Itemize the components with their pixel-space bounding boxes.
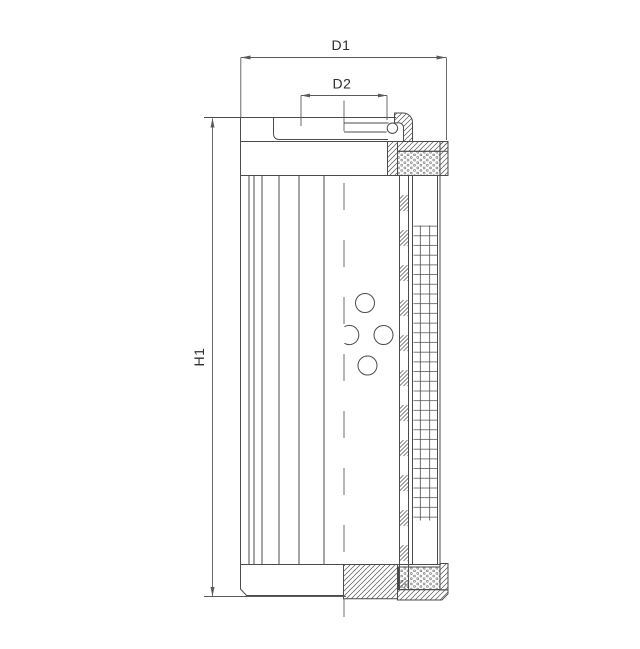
bottom-cap-section xyxy=(344,565,398,599)
flange-right-section xyxy=(440,142,448,176)
perforation-hole xyxy=(356,294,375,313)
bottom-seal-stipple xyxy=(399,567,441,590)
perforation-hole-partial xyxy=(344,325,358,344)
core-perforations xyxy=(344,294,393,376)
cap-inner-step xyxy=(274,118,389,140)
bottom-flange-right-section xyxy=(440,564,448,591)
o-ring xyxy=(387,123,397,133)
arrowhead-down-icon xyxy=(211,587,215,597)
cap-inner-ring-section xyxy=(388,142,398,176)
perforation-hole xyxy=(358,356,377,375)
arrowhead-left-icon xyxy=(241,56,251,60)
arrowhead-right-icon xyxy=(437,56,447,60)
d1-label: D1 xyxy=(332,37,351,53)
d2-label: D2 xyxy=(333,76,352,92)
arrowhead-up-icon xyxy=(211,118,215,128)
bottom-cap-flange-section xyxy=(398,590,449,600)
mesh-grid xyxy=(414,226,438,521)
arrowhead-right-icon xyxy=(378,94,387,98)
drawing-canvas: D1 D2 H1 xyxy=(0,0,640,649)
perforation-hole xyxy=(374,326,393,345)
pleat-lines xyxy=(249,176,324,564)
top-seal-stipple xyxy=(398,151,441,175)
h1-label: H1 xyxy=(191,348,207,367)
top-end-cap xyxy=(204,113,448,176)
pleated-media xyxy=(249,176,324,564)
filter-element-technical-drawing: D1 D2 H1 xyxy=(0,0,640,649)
arrowhead-left-icon xyxy=(301,94,310,98)
oring-groove-lines xyxy=(344,123,389,132)
mesh-outer-wall xyxy=(438,176,441,565)
support-tube xyxy=(400,176,409,590)
support-tube-perforation-blocks xyxy=(400,195,409,588)
wire-mesh xyxy=(413,176,441,565)
filter-element xyxy=(204,101,448,618)
dimension-h1: H1 xyxy=(191,118,346,597)
bottom-cap-left-profile xyxy=(241,176,344,596)
